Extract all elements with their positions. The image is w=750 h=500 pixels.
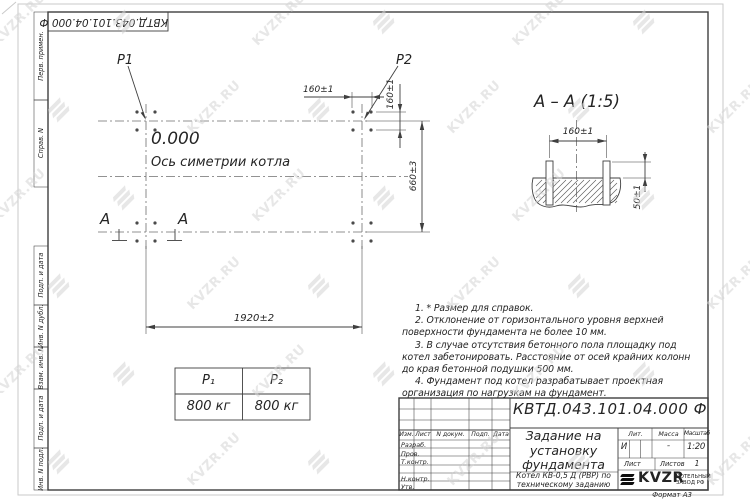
note-4: 4. Фундамент под котел разрабатывает про… bbox=[402, 376, 703, 400]
mass-label: Масса bbox=[653, 430, 684, 438]
header-col-data: Дата bbox=[493, 431, 509, 438]
header-col-list: Лист bbox=[415, 431, 431, 438]
mass-value: - bbox=[653, 441, 684, 451]
drawing-linework bbox=[0, 0, 750, 500]
load-point-p2-label: P2 bbox=[396, 53, 412, 68]
sheet-frame bbox=[2, 2, 723, 495]
hatch-line bbox=[567, 180, 590, 203]
sheets-label: Листов bbox=[660, 460, 685, 468]
title-block-designation: КВТД.043.101.04.000 Ф bbox=[513, 400, 705, 418]
top-designation: КВТД.043.101.04.000 Ф bbox=[48, 12, 168, 31]
margin-label-inv-dubl: Инв. N дубл. bbox=[37, 304, 45, 347]
load-table-value-p1: 800 кг bbox=[175, 399, 242, 414]
note-1: 1. * Размер для справок. bbox=[402, 303, 703, 315]
scale-value: 1:20 bbox=[685, 442, 707, 452]
kvzr-logo-icon bbox=[621, 473, 634, 487]
note-2: 2. Отклонение от горизонтального уровня … bbox=[402, 315, 703, 339]
section-letter-right: А bbox=[178, 210, 188, 228]
section-dim-spacing: 160±1 bbox=[553, 127, 603, 137]
sign-row-nkontr: Н.контр. bbox=[401, 475, 430, 483]
drawing-sheet: КВТД.043.101.04.000 Ф Перв. примен. Спра… bbox=[0, 0, 750, 500]
lit-label: Лит. bbox=[619, 430, 652, 438]
sheet-label: Лист bbox=[624, 460, 641, 468]
hatch-line bbox=[561, 180, 584, 203]
load-table-value-p2: 800 кг bbox=[243, 399, 310, 414]
header-col-ndocum: N докум. bbox=[432, 431, 469, 438]
hatch-line bbox=[579, 180, 602, 203]
section-view-title: А – А (1:5) bbox=[534, 92, 620, 111]
note-3: 3. В случае отсутствия бетонного пола пл… bbox=[402, 340, 703, 377]
dim-bolt-spacing-top: 160±1 bbox=[303, 85, 333, 95]
load-table-header-p2: P₂ bbox=[243, 373, 310, 388]
boiler-axis-label: Ось симетрии котла bbox=[151, 155, 290, 170]
lit-value: И bbox=[619, 442, 629, 452]
format-label: Формат А3 bbox=[642, 491, 702, 499]
margin-label-vzam-inv: Взам. инв. N bbox=[37, 347, 45, 390]
hatch-line bbox=[615, 201, 617, 203]
sheets-value: 1 bbox=[690, 459, 704, 468]
dim-foundation-width: 660±3 bbox=[409, 161, 419, 191]
section-letter-left: А bbox=[100, 210, 110, 228]
technical-notes: 1. * Размер для справок. 2. Отклонение о… bbox=[402, 303, 703, 401]
sign-row-tkontr: Т.контр. bbox=[401, 458, 429, 466]
title-block-product: Котел КВ-0,5 Д (РВР) по техническому зад… bbox=[511, 471, 616, 489]
margin-label-podp-data-1: Подп. и дата bbox=[37, 253, 45, 298]
sign-row-razrab: Разраб. bbox=[401, 441, 426, 449]
elevation-mark: 0.000 bbox=[151, 129, 200, 149]
dim-bolt-spacing-side: 160±1 bbox=[386, 79, 396, 109]
title-block-doc-title: Задание на установку фундамента bbox=[511, 429, 616, 473]
plan-view-linework bbox=[98, 66, 430, 334]
margin-label-podp-data-2: Подп. и дата bbox=[37, 396, 45, 441]
load-point-p1-label: P1 bbox=[117, 53, 133, 68]
margin-label-sprav-n: Справ. N bbox=[37, 128, 45, 158]
hatch-line bbox=[591, 180, 614, 203]
load-table-header-p1: P₁ bbox=[175, 373, 242, 388]
header-col-izm: Изм. bbox=[399, 431, 414, 438]
hatch-line bbox=[536, 180, 542, 186]
header-col-podp: Подп. bbox=[470, 431, 491, 438]
company-caption: КОТЕЛЬНЫЙ ЗАВОД РФ bbox=[676, 474, 706, 487]
hatch-line bbox=[555, 180, 578, 203]
section-dim-height: 50±1 bbox=[633, 185, 643, 210]
margin-label-inv-podl: Инв. N подл. bbox=[37, 447, 45, 491]
sign-row-prov: Пров. bbox=[401, 450, 420, 458]
sign-row-utv: Утв. bbox=[401, 483, 414, 491]
scale-label: Масштаб bbox=[684, 431, 708, 437]
dim-foundation-length: 1920±2 bbox=[214, 313, 294, 324]
margin-label-perv-primen: Перв. примен. bbox=[37, 31, 45, 81]
